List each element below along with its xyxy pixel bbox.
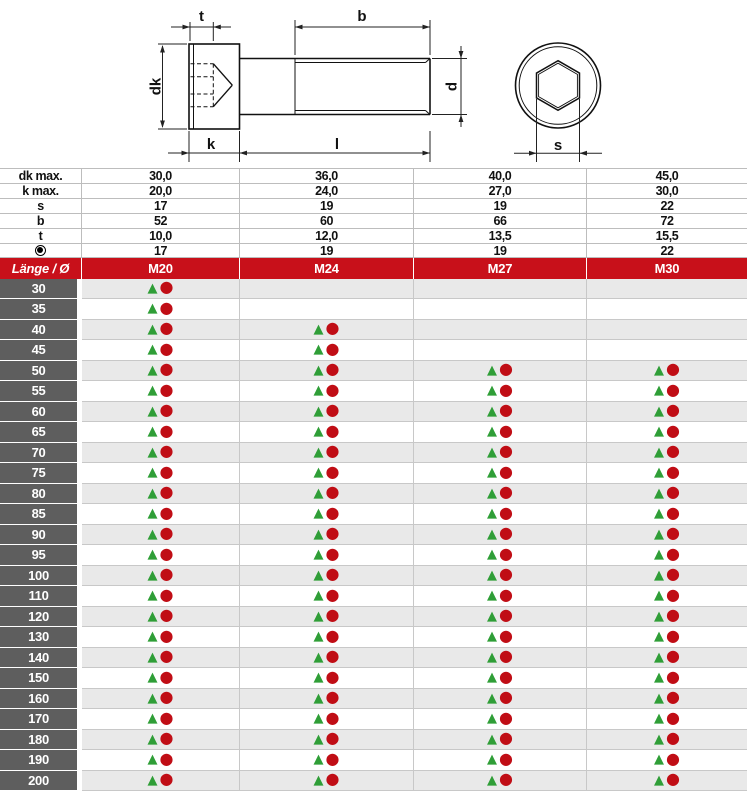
triangle-icon: ▲ bbox=[487, 446, 497, 459]
spec-value: 15,5 bbox=[587, 229, 747, 243]
availability-markers: ▲● bbox=[82, 627, 240, 648]
circle-icon: ● bbox=[499, 710, 513, 726]
circle-icon: ● bbox=[160, 443, 174, 459]
circle-icon: ● bbox=[326, 730, 340, 746]
table-row: 200▲●▲●▲●▲● bbox=[0, 771, 747, 791]
triangle-icon: ▲ bbox=[654, 651, 664, 664]
circle-icon: ● bbox=[160, 689, 174, 705]
availability-markers: ▲● bbox=[82, 648, 240, 669]
availability-markers: ▲● bbox=[240, 381, 414, 402]
hex-socket-inner-outline bbox=[539, 63, 578, 108]
empty-cell bbox=[587, 279, 747, 300]
length-label: 75 bbox=[0, 463, 82, 484]
circle-icon: ● bbox=[666, 710, 680, 726]
triangle-icon: ▲ bbox=[314, 774, 324, 787]
circle-icon: ● bbox=[160, 341, 174, 357]
triangle-icon: ▲ bbox=[654, 774, 664, 787]
circle-icon: ● bbox=[666, 443, 680, 459]
length-label: 160 bbox=[0, 689, 82, 710]
circle-icon: ● bbox=[666, 628, 680, 644]
availability-markers: ▲● bbox=[240, 361, 414, 382]
circle-icon: ● bbox=[666, 423, 680, 439]
spec-value: 52 bbox=[82, 214, 240, 228]
triangle-icon: ▲ bbox=[314, 487, 324, 500]
circle-icon: ● bbox=[326, 320, 340, 336]
triangle-icon: ▲ bbox=[314, 425, 324, 438]
length-label: 65 bbox=[0, 422, 82, 443]
circle-icon: ● bbox=[160, 484, 174, 500]
triangle-icon: ▲ bbox=[654, 753, 664, 766]
triangle-icon: ▲ bbox=[314, 692, 324, 705]
circle-icon: ● bbox=[326, 546, 340, 562]
length-label: 100 bbox=[0, 566, 82, 587]
availability-markers: ▲● bbox=[240, 340, 414, 361]
circle-icon: ● bbox=[160, 546, 174, 562]
circle-icon: ● bbox=[666, 607, 680, 623]
circle-icon: ● bbox=[160, 587, 174, 603]
triangle-icon: ▲ bbox=[654, 364, 664, 377]
triangle-icon: ▲ bbox=[148, 446, 158, 459]
availability-markers: ▲● bbox=[82, 689, 240, 710]
circle-icon: ● bbox=[326, 710, 340, 726]
circle-icon: ● bbox=[326, 607, 340, 623]
empty-cell bbox=[414, 299, 587, 320]
circle-icon: ● bbox=[326, 443, 340, 459]
circle-icon: ● bbox=[326, 648, 340, 664]
triangle-icon: ▲ bbox=[487, 548, 497, 561]
circle-icon: ● bbox=[160, 566, 174, 582]
triangle-icon: ▲ bbox=[148, 466, 158, 479]
spec-row: dk max.30,036,040,045,0 bbox=[0, 168, 747, 183]
table-row: 45▲●▲● bbox=[0, 340, 747, 361]
availability-markers: ▲● bbox=[82, 586, 240, 607]
circle-icon: ● bbox=[326, 423, 340, 439]
availability-markers: ▲● bbox=[414, 422, 587, 443]
circle-icon: ● bbox=[499, 361, 513, 377]
availability-markers: ▲● bbox=[240, 750, 414, 771]
availability-markers: ▲● bbox=[82, 730, 240, 751]
availability-markers: ▲● bbox=[240, 730, 414, 751]
length-label: 180 bbox=[0, 730, 82, 751]
availability-markers: ▲● bbox=[82, 709, 240, 730]
triangle-icon: ▲ bbox=[148, 712, 158, 725]
availability-markers: ▲● bbox=[414, 566, 587, 587]
triangle-icon: ▲ bbox=[487, 569, 497, 582]
triangle-icon: ▲ bbox=[148, 692, 158, 705]
circle-icon: ● bbox=[160, 751, 174, 767]
availability-markers: ▲● bbox=[587, 525, 747, 546]
availability-markers: ▲● bbox=[414, 463, 587, 484]
availability-markers: ▲● bbox=[587, 381, 747, 402]
triangle-icon: ▲ bbox=[148, 323, 158, 336]
table-row: 30▲● bbox=[0, 279, 747, 300]
triangle-icon: ▲ bbox=[654, 384, 664, 397]
spec-row: t10,012,013,515,5 bbox=[0, 228, 747, 243]
length-label: 55 bbox=[0, 381, 82, 402]
availability-markers: ▲● bbox=[414, 504, 587, 525]
availability-markers: ▲● bbox=[587, 443, 747, 464]
availability-markers: ▲● bbox=[82, 340, 240, 361]
circle-icon: ● bbox=[160, 423, 174, 439]
dim-label-b: b bbox=[357, 8, 366, 25]
availability-markers: ▲● bbox=[587, 463, 747, 484]
availability-markers: ▲● bbox=[82, 279, 240, 300]
screw-drawing-svg: t b dk d k l s bbox=[0, 0, 747, 168]
availability-markers: ▲● bbox=[82, 566, 240, 587]
length-label: 170 bbox=[0, 709, 82, 730]
circle-icon: ● bbox=[326, 689, 340, 705]
empty-cell bbox=[414, 340, 587, 361]
availability-markers: ▲● bbox=[82, 299, 240, 320]
table-row: 80▲●▲●▲●▲● bbox=[0, 484, 747, 505]
availability-markers: ▲● bbox=[82, 484, 240, 505]
triangle-icon: ▲ bbox=[148, 753, 158, 766]
availability-markers: ▲● bbox=[82, 504, 240, 525]
availability-markers: ▲● bbox=[587, 545, 747, 566]
spec-value: 19 bbox=[240, 244, 414, 257]
triangle-icon: ▲ bbox=[148, 610, 158, 623]
circle-icon: ● bbox=[499, 771, 513, 787]
spec-value: 19 bbox=[240, 199, 414, 213]
length-diameter-header: Länge / Ø bbox=[0, 258, 82, 279]
triangle-icon: ▲ bbox=[654, 671, 664, 684]
length-label: 120 bbox=[0, 607, 82, 628]
triangle-icon: ▲ bbox=[148, 302, 158, 315]
column-header-m20: M20 bbox=[82, 258, 240, 279]
table-row: 120▲●▲●▲●▲● bbox=[0, 607, 747, 628]
spec-value: 17 bbox=[82, 244, 240, 257]
triangle-icon: ▲ bbox=[148, 630, 158, 643]
table-row: 50▲●▲●▲●▲● bbox=[0, 361, 747, 382]
length-label: 30 bbox=[0, 279, 82, 300]
availability-markers: ▲● bbox=[82, 668, 240, 689]
availability-markers: ▲● bbox=[414, 484, 587, 505]
availability-markers: ▲● bbox=[414, 586, 587, 607]
dim-label-k: k bbox=[207, 136, 216, 153]
triangle-icon: ▲ bbox=[314, 671, 324, 684]
circle-icon: ● bbox=[666, 566, 680, 582]
availability-markers: ▲● bbox=[82, 320, 240, 341]
dimension-lines bbox=[158, 20, 602, 162]
triangle-icon: ▲ bbox=[487, 774, 497, 787]
circle-icon: ● bbox=[499, 648, 513, 664]
circle-icon: ● bbox=[666, 464, 680, 480]
spec-row: 17191922 bbox=[0, 243, 747, 258]
triangle-icon: ▲ bbox=[487, 753, 497, 766]
triangle-icon: ▲ bbox=[148, 507, 158, 520]
empty-cell bbox=[587, 340, 747, 361]
circle-icon: ● bbox=[160, 771, 174, 787]
availability-markers: ▲● bbox=[82, 443, 240, 464]
availability-markers: ▲● bbox=[82, 750, 240, 771]
circle-icon: ● bbox=[326, 566, 340, 582]
spec-value: 17 bbox=[82, 199, 240, 213]
availability-markers: ▲● bbox=[240, 689, 414, 710]
column-header-m30: M30 bbox=[587, 258, 747, 279]
availability-markers: ▲● bbox=[82, 402, 240, 423]
length-label: 150 bbox=[0, 668, 82, 689]
technical-drawing: t b dk d k l s bbox=[0, 0, 747, 168]
empty-cell bbox=[587, 299, 747, 320]
circle-icon: ● bbox=[499, 525, 513, 541]
empty-cell bbox=[587, 320, 747, 341]
circle-icon: ● bbox=[160, 525, 174, 541]
triangle-icon: ▲ bbox=[487, 712, 497, 725]
circle-icon: ● bbox=[160, 628, 174, 644]
circle-icon: ● bbox=[499, 587, 513, 603]
dim-label-t: t bbox=[199, 8, 204, 25]
circle-icon: ● bbox=[160, 607, 174, 623]
circle-icon: ● bbox=[666, 669, 680, 685]
triangle-icon: ▲ bbox=[654, 507, 664, 520]
triangle-icon: ▲ bbox=[654, 548, 664, 561]
spec-value: 30,0 bbox=[82, 169, 240, 183]
triangle-icon: ▲ bbox=[148, 651, 158, 664]
availability-markers: ▲● bbox=[587, 709, 747, 730]
availability-markers: ▲● bbox=[82, 361, 240, 382]
circle-icon: ● bbox=[499, 443, 513, 459]
triangle-icon: ▲ bbox=[148, 528, 158, 541]
availability-markers: ▲● bbox=[414, 525, 587, 546]
table-row: 75▲●▲●▲●▲● bbox=[0, 463, 747, 484]
head-outer-circle bbox=[516, 43, 601, 128]
triangle-icon: ▲ bbox=[487, 507, 497, 520]
availability-markers: ▲● bbox=[240, 504, 414, 525]
triangle-icon: ▲ bbox=[148, 343, 158, 356]
hex-socket-outline bbox=[537, 61, 580, 111]
table-row: 150▲●▲●▲●▲● bbox=[0, 668, 747, 689]
triangle-icon: ▲ bbox=[487, 425, 497, 438]
triangle-icon: ▲ bbox=[148, 569, 158, 582]
length-label: 200 bbox=[0, 771, 82, 791]
spec-value: 72 bbox=[587, 214, 747, 228]
triangle-icon: ▲ bbox=[487, 630, 497, 643]
triangle-icon: ▲ bbox=[654, 630, 664, 643]
circle-icon: ● bbox=[326, 402, 340, 418]
triangle-icon: ▲ bbox=[314, 569, 324, 582]
triangle-icon: ▲ bbox=[654, 446, 664, 459]
table-row: 55▲●▲●▲●▲● bbox=[0, 381, 747, 402]
availability-markers: ▲● bbox=[414, 689, 587, 710]
circle-icon: ● bbox=[326, 341, 340, 357]
availability-markers: ▲● bbox=[587, 750, 747, 771]
availability-markers: ▲● bbox=[240, 648, 414, 669]
circle-icon: ● bbox=[499, 607, 513, 623]
availability-markers: ▲● bbox=[240, 402, 414, 423]
triangle-icon: ▲ bbox=[148, 282, 158, 295]
circle-icon: ● bbox=[499, 751, 513, 767]
triangle-icon: ▲ bbox=[314, 712, 324, 725]
table-row: 85▲●▲●▲●▲● bbox=[0, 504, 747, 525]
availability-markers: ▲● bbox=[587, 668, 747, 689]
availability-markers: ▲● bbox=[587, 484, 747, 505]
circle-icon: ● bbox=[160, 300, 174, 316]
circle-icon: ● bbox=[160, 382, 174, 398]
circle-icon: ● bbox=[326, 464, 340, 480]
availability-markers: ▲● bbox=[587, 648, 747, 669]
availability-markers: ▲● bbox=[414, 627, 587, 648]
availability-markers: ▲● bbox=[414, 545, 587, 566]
triangle-icon: ▲ bbox=[487, 733, 497, 746]
spec-value: 19 bbox=[414, 244, 587, 257]
triangle-icon: ▲ bbox=[314, 384, 324, 397]
socket-cone-line bbox=[213, 85, 232, 107]
triangle-icon: ▲ bbox=[654, 528, 664, 541]
circle-icon: ● bbox=[160, 648, 174, 664]
spec-value: 22 bbox=[587, 244, 747, 257]
triangle-icon: ▲ bbox=[487, 589, 497, 602]
availability-markers: ▲● bbox=[240, 607, 414, 628]
triangle-icon: ▲ bbox=[487, 405, 497, 418]
spec-value: 19 bbox=[414, 199, 587, 213]
spec-value: 22 bbox=[587, 199, 747, 213]
table-row: 170▲●▲●▲●▲● bbox=[0, 709, 747, 730]
availability-markers: ▲● bbox=[240, 422, 414, 443]
availability-markers: ▲● bbox=[240, 463, 414, 484]
availability-markers: ▲● bbox=[240, 586, 414, 607]
spec-row: s17191922 bbox=[0, 198, 747, 213]
length-label: 60 bbox=[0, 402, 82, 423]
spec-row: b52606672 bbox=[0, 213, 747, 228]
table-row: 180▲●▲●▲●▲● bbox=[0, 730, 747, 751]
circle-icon: ● bbox=[326, 669, 340, 685]
length-label: 50 bbox=[0, 361, 82, 382]
table-row: 70▲●▲●▲●▲● bbox=[0, 443, 747, 464]
spec-value: 60 bbox=[240, 214, 414, 228]
spec-value: 10,0 bbox=[82, 229, 240, 243]
triangle-icon: ▲ bbox=[314, 610, 324, 623]
table-row: 190▲●▲●▲●▲● bbox=[0, 750, 747, 771]
length-label: 70 bbox=[0, 443, 82, 464]
circle-icon: ● bbox=[160, 279, 174, 295]
triangle-icon: ▲ bbox=[314, 651, 324, 664]
empty-cell bbox=[240, 299, 414, 320]
spec-value: 24,0 bbox=[240, 184, 414, 198]
triangle-icon: ▲ bbox=[487, 671, 497, 684]
empty-cell bbox=[414, 279, 587, 300]
spec-label: k max. bbox=[0, 184, 82, 198]
circle-icon: ● bbox=[666, 382, 680, 398]
spec-label: b bbox=[0, 214, 82, 228]
dim-label-dk: dk bbox=[148, 77, 165, 95]
table-row: 160▲●▲●▲●▲● bbox=[0, 689, 747, 710]
circle-icon: ● bbox=[499, 566, 513, 582]
triangle-icon: ▲ bbox=[314, 589, 324, 602]
length-label: 140 bbox=[0, 648, 82, 669]
availability-markers: ▲● bbox=[82, 422, 240, 443]
triangle-icon: ▲ bbox=[654, 405, 664, 418]
length-label: 95 bbox=[0, 545, 82, 566]
table-row: 65▲●▲●▲●▲● bbox=[0, 422, 747, 443]
circle-icon: ● bbox=[499, 669, 513, 685]
circle-icon: ● bbox=[666, 730, 680, 746]
availability-markers: ▲● bbox=[240, 545, 414, 566]
socket-cone-line bbox=[213, 64, 232, 85]
circle-icon: ● bbox=[160, 464, 174, 480]
spec-value: 45,0 bbox=[587, 169, 747, 183]
circle-icon: ● bbox=[160, 730, 174, 746]
availability-markers: ▲● bbox=[414, 750, 587, 771]
table-row: 130▲●▲●▲●▲● bbox=[0, 627, 747, 648]
length-label: 40 bbox=[0, 320, 82, 341]
triangle-icon: ▲ bbox=[314, 528, 324, 541]
triangle-icon: ▲ bbox=[487, 364, 497, 377]
triangle-icon: ▲ bbox=[314, 446, 324, 459]
spec-value: 30,0 bbox=[587, 184, 747, 198]
length-label: 90 bbox=[0, 525, 82, 546]
triangle-icon: ▲ bbox=[148, 364, 158, 377]
availability-markers: ▲● bbox=[587, 586, 747, 607]
circle-icon: ● bbox=[499, 484, 513, 500]
triangle-icon: ▲ bbox=[148, 589, 158, 602]
empty-cell bbox=[414, 320, 587, 341]
spec-value: 13,5 bbox=[414, 229, 587, 243]
socket-icon-cell bbox=[0, 244, 82, 257]
availability-markers: ▲● bbox=[587, 361, 747, 382]
triangle-icon: ▲ bbox=[314, 343, 324, 356]
circle-icon: ● bbox=[666, 751, 680, 767]
dim-label-d: d bbox=[444, 82, 461, 91]
length-label: 45 bbox=[0, 340, 82, 361]
spec-table: dk max.30,036,040,045,0k max.20,024,027,… bbox=[0, 168, 747, 258]
availability-markers: ▲● bbox=[414, 771, 587, 791]
triangle-icon: ▲ bbox=[314, 753, 324, 766]
availability-markers: ▲● bbox=[82, 607, 240, 628]
availability-markers: ▲● bbox=[414, 607, 587, 628]
availability-markers: ▲● bbox=[414, 443, 587, 464]
circle-icon: ● bbox=[499, 730, 513, 746]
length-label: 80 bbox=[0, 484, 82, 505]
triangle-icon: ▲ bbox=[314, 507, 324, 520]
availability-markers: ▲● bbox=[240, 709, 414, 730]
circle-icon: ● bbox=[160, 669, 174, 685]
triangle-icon: ▲ bbox=[487, 466, 497, 479]
circle-icon: ● bbox=[499, 628, 513, 644]
availability-markers: ▲● bbox=[240, 320, 414, 341]
spec-value: 12,0 bbox=[240, 229, 414, 243]
triangle-icon: ▲ bbox=[148, 384, 158, 397]
triangle-icon: ▲ bbox=[314, 323, 324, 336]
triangle-icon: ▲ bbox=[654, 569, 664, 582]
circle-icon: ● bbox=[326, 484, 340, 500]
circle-icon: ● bbox=[326, 751, 340, 767]
spec-label: s bbox=[0, 199, 82, 213]
availability-markers: ▲● bbox=[587, 771, 747, 791]
availability-markers: ▲● bbox=[82, 545, 240, 566]
circle-icon: ● bbox=[666, 361, 680, 377]
table-row: 95▲●▲●▲●▲● bbox=[0, 545, 747, 566]
availability-markers: ▲● bbox=[587, 689, 747, 710]
availability-markers: ▲● bbox=[414, 730, 587, 751]
triangle-icon: ▲ bbox=[654, 712, 664, 725]
table-row: 140▲●▲●▲●▲● bbox=[0, 648, 747, 669]
triangle-icon: ▲ bbox=[314, 466, 324, 479]
dim-label-s: s bbox=[554, 137, 562, 154]
table-row: 60▲●▲●▲●▲● bbox=[0, 402, 747, 423]
triangle-icon: ▲ bbox=[314, 405, 324, 418]
triangle-icon: ▲ bbox=[314, 364, 324, 377]
circle-icon: ● bbox=[326, 587, 340, 603]
availability-markers: ▲● bbox=[240, 443, 414, 464]
spec-label: t bbox=[0, 229, 82, 243]
availability-markers: ▲● bbox=[240, 525, 414, 546]
triangle-icon: ▲ bbox=[148, 487, 158, 500]
availability-markers: ▲● bbox=[587, 402, 747, 423]
table-header-row: Länge / Ø M20 M24 M27 M30 bbox=[0, 258, 747, 279]
circle-icon: ● bbox=[666, 546, 680, 562]
socket-icon bbox=[35, 245, 46, 256]
availability-markers: ▲● bbox=[414, 381, 587, 402]
